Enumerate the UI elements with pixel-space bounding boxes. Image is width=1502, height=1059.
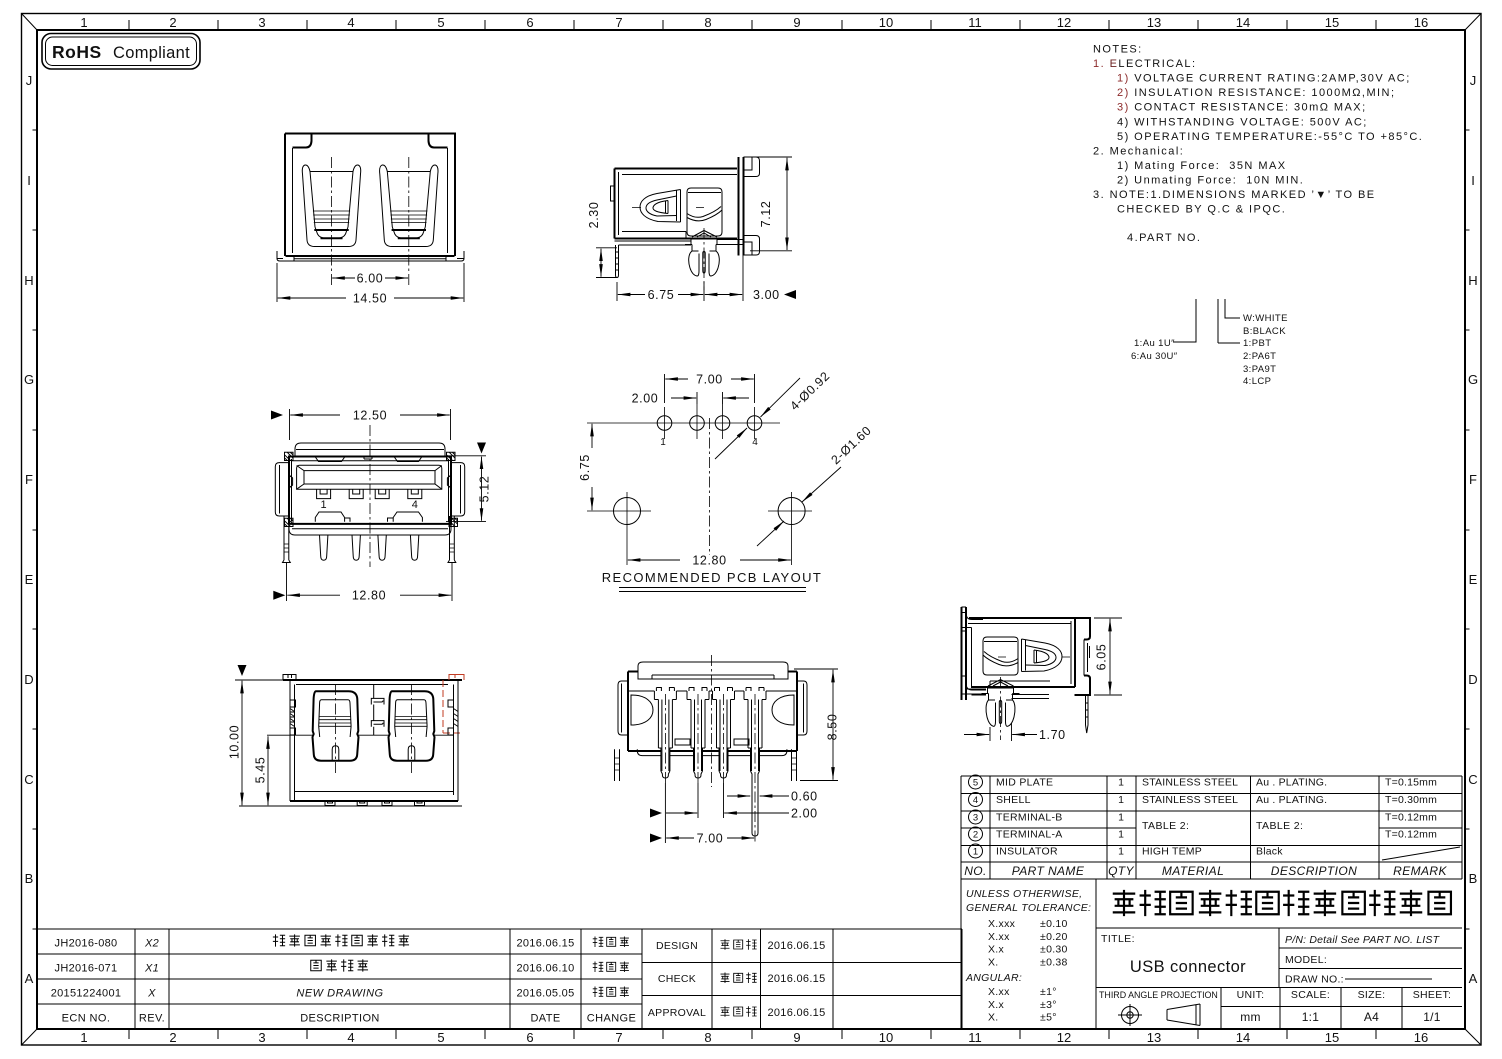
svg-text:GENERAL TOLERANCE:: GENERAL TOLERANCE:: [966, 902, 1091, 914]
svg-text:B: B: [1469, 871, 1478, 886]
svg-text:3.00: 3.00: [753, 288, 780, 302]
svg-text:6: 6: [526, 1030, 533, 1045]
svg-text:2) Unmating Force: 10N MIN.: 2) Unmating Force: 10N MIN.: [1117, 174, 1304, 186]
svg-text:QTY: QTY: [1108, 864, 1134, 878]
svg-text:5: 5: [437, 15, 444, 30]
svg-text:I: I: [1471, 173, 1475, 188]
svg-text:A4: A4: [1364, 1010, 1379, 1024]
svg-text:20151224001: 20151224001: [51, 988, 122, 1000]
svg-text:±0.20: ±0.20: [1040, 931, 1068, 943]
svg-text:Black: Black: [1256, 846, 1283, 858]
svg-text:STAINLESS STEEL: STAINLESS STEEL: [1142, 794, 1238, 806]
svg-text:H: H: [24, 273, 33, 288]
svg-text:CHANGE: CHANGE: [587, 1013, 636, 1025]
svg-text:1:Au 1U″: 1:Au 1U″: [1134, 338, 1175, 349]
svg-text:1: 1: [1118, 812, 1124, 824]
svg-text:T=0.30mm: T=0.30mm: [1385, 794, 1437, 806]
svg-text:11: 11: [968, 1030, 982, 1045]
svg-text:7.12: 7.12: [759, 201, 773, 228]
svg-text:T=0.15mm: T=0.15mm: [1385, 777, 1437, 789]
svg-text:HIGH TEMP: HIGH TEMP: [1142, 846, 1202, 858]
svg-text:15: 15: [1325, 1030, 1339, 1045]
svg-text:SIZE:: SIZE:: [1358, 989, 1386, 1001]
svg-text:4: 4: [973, 795, 978, 806]
svg-text:12: 12: [1057, 15, 1071, 30]
svg-text:SCALE:: SCALE:: [1291, 989, 1330, 1001]
svg-text:5.12: 5.12: [478, 476, 492, 503]
svg-text:STAINLESS STEEL: STAINLESS STEEL: [1142, 777, 1238, 789]
svg-text:4.PART NO.: 4.PART NO.: [1127, 232, 1201, 244]
svg-text:TERMINAL-A: TERMINAL-A: [996, 829, 1063, 841]
svg-text:2:PA6T: 2:PA6T: [1243, 351, 1276, 362]
svg-text:2016.05.05: 2016.05.05: [516, 988, 574, 1000]
svg-text:A: A: [25, 971, 34, 986]
svg-text:NOTES:: NOTES:: [1093, 44, 1143, 56]
svg-text:14.50: 14.50: [353, 291, 387, 305]
svg-text:F: F: [1469, 472, 1477, 487]
svg-text:JH2016-080: JH2016-080: [55, 938, 118, 950]
svg-text:1: 1: [973, 847, 978, 858]
svg-text:Au . PLATING.: Au . PLATING.: [1256, 794, 1327, 806]
svg-text:NEW DRAWING: NEW DRAWING: [296, 988, 383, 1000]
svg-text:2016.06.10: 2016.06.10: [516, 963, 574, 975]
svg-text:8.50: 8.50: [826, 714, 840, 741]
svg-text:1: 1: [1118, 846, 1124, 858]
svg-text:4: 4: [347, 1030, 354, 1045]
svg-text:G: G: [24, 372, 34, 387]
svg-text:X: X: [147, 988, 156, 1000]
svg-text:5: 5: [437, 1030, 444, 1045]
svg-text:1: 1: [320, 499, 326, 511]
svg-text:1: 1: [660, 437, 666, 448]
svg-text:SHEET:: SHEET:: [1413, 989, 1452, 1001]
svg-text:Au . PLATING.: Au . PLATING.: [1256, 777, 1327, 789]
svg-text:F: F: [25, 472, 33, 487]
svg-text:1: 1: [80, 15, 87, 30]
svg-text:2016.06.15: 2016.06.15: [767, 1007, 825, 1019]
svg-text:APPROVAL: APPROVAL: [648, 1007, 706, 1019]
svg-text:D: D: [24, 672, 33, 687]
svg-text:6.00: 6.00: [357, 271, 384, 285]
svg-text:I: I: [27, 173, 31, 188]
svg-text:5.45: 5.45: [254, 757, 268, 784]
svg-text:5) OPERATING TEMPERATURE:-55°C: 5) OPERATING TEMPERATURE:-55°C TO +85°C.: [1117, 131, 1423, 143]
svg-text:15: 15: [1325, 15, 1339, 30]
svg-text:3: 3: [258, 15, 265, 30]
svg-text:10: 10: [879, 15, 893, 30]
svg-text:4: 4: [412, 499, 418, 511]
svg-text:RoHS: RoHS: [52, 42, 102, 62]
svg-text:RECOMMENDED PCB LAYOUT: RECOMMENDED PCB LAYOUT: [602, 570, 823, 585]
svg-text:1:PBT: 1:PBT: [1243, 338, 1271, 349]
svg-text:1: 1: [80, 1030, 87, 1045]
svg-text:X1: X1: [144, 963, 159, 975]
svg-text:5: 5: [973, 778, 978, 789]
svg-text:10.00: 10.00: [228, 725, 242, 759]
svg-text:±0.10: ±0.10: [1040, 918, 1068, 930]
svg-text:DESIGN: DESIGN: [656, 940, 698, 952]
svg-text:2.00: 2.00: [632, 391, 659, 405]
svg-text:4: 4: [347, 15, 354, 30]
svg-text:NO.: NO.: [964, 864, 987, 878]
svg-text:7.00: 7.00: [696, 372, 723, 386]
svg-text:13: 13: [1147, 1030, 1161, 1045]
svg-text:TABLE 2:: TABLE 2:: [1142, 820, 1189, 832]
svg-text:C: C: [1468, 772, 1477, 787]
svg-text:3. NOTE:1.DIMENSIONS MARKED ’▼: 3. NOTE:1.DIMENSIONS MARKED ’▼’ TO BE: [1093, 189, 1376, 201]
svg-text:1) Mating Force: 35N MAX: 1) Mating Force: 35N MAX: [1117, 160, 1287, 172]
svg-text:CHECKED BY Q.C & IPQC.: CHECKED BY Q.C & IPQC.: [1117, 204, 1286, 216]
svg-text:H: H: [1468, 273, 1477, 288]
svg-text:E: E: [25, 572, 34, 587]
svg-text:2016.06.15: 2016.06.15: [516, 938, 574, 950]
svg-text:8: 8: [704, 1030, 711, 1045]
svg-text:7.00: 7.00: [697, 831, 724, 845]
svg-text:3: 3: [258, 1030, 265, 1045]
svg-text:13: 13: [1147, 15, 1161, 30]
svg-text:10: 10: [879, 1030, 893, 1045]
svg-text:B:BLACK: B:BLACK: [1243, 326, 1286, 337]
svg-text:G: G: [1468, 372, 1478, 387]
svg-text:11: 11: [968, 15, 982, 30]
svg-text:REMARK: REMARK: [1393, 864, 1447, 878]
svg-text:14: 14: [1236, 15, 1250, 30]
svg-text:12.50: 12.50: [353, 408, 387, 422]
svg-text:PART NAME: PART NAME: [1012, 864, 1085, 878]
svg-text:2016.06.15: 2016.06.15: [767, 940, 825, 952]
svg-text:X.x: X.x: [988, 944, 1005, 956]
svg-text:6: 6: [526, 15, 533, 30]
svg-text:J: J: [26, 73, 33, 88]
svg-text:14: 14: [1236, 1030, 1250, 1045]
svg-text:D: D: [1468, 672, 1477, 687]
svg-text:2: 2: [169, 15, 176, 30]
svg-text:TABLE 2:: TABLE 2:: [1256, 820, 1303, 832]
svg-text:X.: X.: [988, 956, 999, 968]
svg-text:12: 12: [1057, 1030, 1071, 1045]
svg-text:8: 8: [704, 15, 711, 30]
svg-text:2016.06.15: 2016.06.15: [767, 973, 825, 985]
svg-text:DESCRIPTION: DESCRIPTION: [1271, 864, 1357, 878]
svg-text:1) VOLTAGE CURRENT RATING:2AMP: 1) VOLTAGE CURRENT RATING:2AMP,30V AC;: [1117, 73, 1411, 85]
svg-text:E: E: [1469, 572, 1478, 587]
svg-text:INSULATOR: INSULATOR: [996, 846, 1058, 858]
svg-text:2) INSULATION RESISTANCE: 1000: 2) INSULATION RESISTANCE: 1000MΩ,MIN;: [1117, 87, 1395, 99]
svg-text:9: 9: [793, 15, 800, 30]
svg-text:P/N: Detail See PART NO. LIST: P/N: Detail See PART NO. LIST: [1285, 934, 1441, 946]
svg-text:12.80: 12.80: [692, 553, 726, 567]
svg-text:DESCRIPTION: DESCRIPTION: [300, 1013, 380, 1025]
svg-text:B: B: [25, 871, 34, 886]
svg-text:3: 3: [973, 813, 978, 824]
svg-text:6.05: 6.05: [1095, 644, 1109, 671]
svg-text:2: 2: [973, 830, 978, 841]
svg-text:9: 9: [793, 1030, 800, 1045]
svg-text:mm: mm: [1240, 1010, 1261, 1024]
svg-text:6.75: 6.75: [578, 454, 592, 481]
svg-text:2.00: 2.00: [791, 806, 818, 820]
svg-text:2. Mechanical:: 2. Mechanical:: [1093, 145, 1184, 157]
svg-text:16: 16: [1414, 15, 1428, 30]
svg-text:X2: X2: [144, 938, 159, 950]
svg-text:MODEL:: MODEL:: [1285, 954, 1327, 966]
svg-text:W:WHITE: W:WHITE: [1243, 313, 1288, 324]
svg-text:THIRD ANGLE PROJECTION: THIRD ANGLE PROJECTION: [1099, 990, 1218, 1000]
svg-text:TERMINAL-B: TERMINAL-B: [996, 812, 1063, 824]
svg-text:ANGULAR:: ANGULAR:: [965, 972, 1022, 984]
svg-text:DATE: DATE: [530, 1013, 560, 1025]
svg-text:X.xx: X.xx: [988, 931, 1010, 943]
svg-text:12.80: 12.80: [352, 589, 386, 603]
svg-text:TITLE:: TITLE:: [1101, 933, 1135, 945]
svg-text:UNIT:: UNIT:: [1237, 989, 1265, 1001]
svg-text:REV.: REV.: [139, 1013, 165, 1025]
svg-text:±3°: ±3°: [1040, 999, 1057, 1011]
svg-text:X.: X.: [988, 1012, 999, 1024]
svg-text:7: 7: [615, 1030, 622, 1045]
svg-text:SHELL: SHELL: [996, 794, 1031, 806]
svg-text:C: C: [24, 772, 33, 787]
svg-text:6:Au 30U″: 6:Au 30U″: [1131, 351, 1178, 362]
svg-text:X.x: X.x: [988, 999, 1005, 1011]
svg-text:UNLESS OTHERWISE,: UNLESS OTHERWISE,: [966, 888, 1082, 900]
svg-text:1:1: 1:1: [1302, 1010, 1320, 1024]
svg-text:6.75: 6.75: [648, 288, 675, 302]
svg-text:1.70: 1.70: [1039, 728, 1066, 742]
svg-text:4) WITHSTANDING VOLTAGE: 500V: 4) WITHSTANDING VOLTAGE: 500V AC;: [1117, 116, 1368, 128]
svg-text:±0.30: ±0.30: [1040, 944, 1068, 956]
svg-text:USB connector: USB connector: [1130, 958, 1246, 976]
svg-text:1. ELECTRICAL:: 1. ELECTRICAL:: [1093, 58, 1196, 70]
svg-text:A: A: [1469, 971, 1478, 986]
svg-text:X.xx: X.xx: [988, 986, 1010, 998]
svg-text:3) CONTACT RESISTANCE: 30mΩ MA: 3) CONTACT RESISTANCE: 30mΩ MAX;: [1117, 102, 1367, 114]
svg-text:±0.38: ±0.38: [1040, 956, 1068, 968]
svg-text:1: 1: [1118, 794, 1124, 806]
svg-text:16: 16: [1414, 1030, 1428, 1045]
svg-text:1: 1: [1118, 777, 1124, 789]
svg-text:T=0.12mm: T=0.12mm: [1385, 812, 1437, 824]
svg-text:MID PLATE: MID PLATE: [996, 777, 1053, 789]
svg-text:4:LCP: 4:LCP: [1243, 376, 1271, 387]
svg-text:J: J: [1470, 73, 1477, 88]
svg-text:ECN NO.: ECN NO.: [62, 1013, 111, 1025]
svg-text:DRAW NO.:: DRAW NO.:: [1285, 974, 1344, 986]
svg-text:3:PA9T: 3:PA9T: [1243, 364, 1276, 375]
svg-text:1/1: 1/1: [1423, 1010, 1441, 1024]
svg-text:Compliant: Compliant: [113, 44, 190, 62]
svg-text:X.xxx: X.xxx: [988, 918, 1016, 930]
svg-text:MATERIAL: MATERIAL: [1162, 864, 1224, 878]
svg-text:T=0.12mm: T=0.12mm: [1385, 829, 1437, 841]
svg-text:2.30: 2.30: [587, 202, 601, 229]
svg-text:±5°: ±5°: [1040, 1012, 1057, 1024]
svg-text:4: 4: [752, 437, 758, 448]
svg-text:JH2016-071: JH2016-071: [55, 963, 118, 975]
svg-text:CHECK: CHECK: [658, 973, 696, 985]
svg-text:7: 7: [615, 15, 622, 30]
svg-text:2: 2: [169, 1030, 176, 1045]
svg-text:±1°: ±1°: [1040, 986, 1057, 998]
svg-text:0.60: 0.60: [791, 789, 818, 803]
svg-text:1: 1: [1118, 829, 1124, 841]
